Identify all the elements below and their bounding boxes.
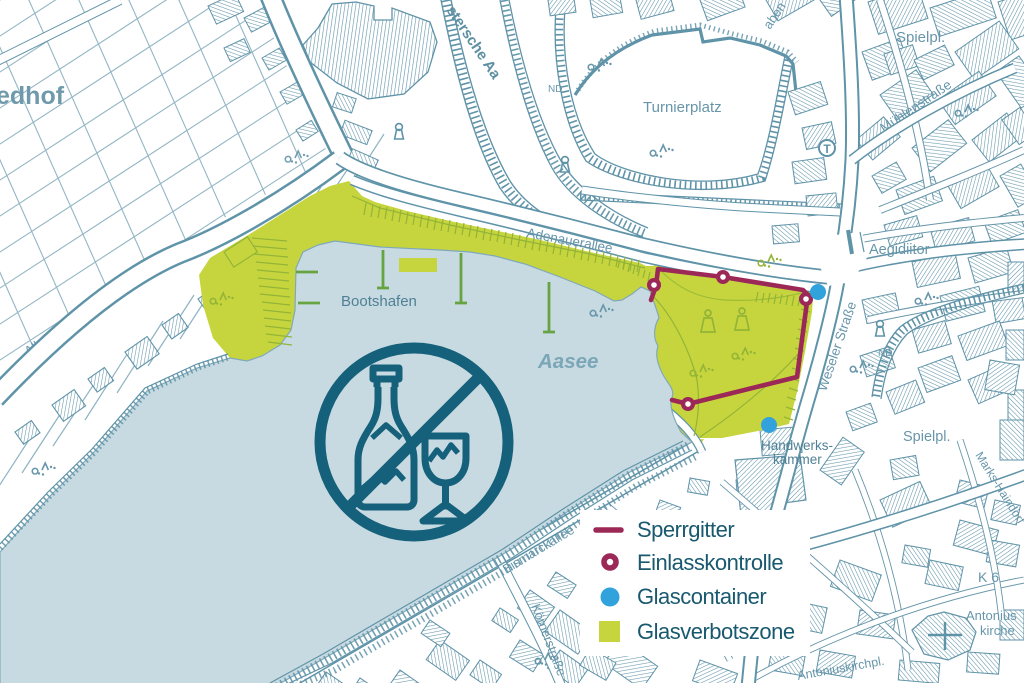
svg-text:K 6: K 6: [978, 569, 999, 585]
svg-text:Antonius: Antonius: [966, 608, 1017, 623]
svg-text:kammer: kammer: [773, 452, 822, 467]
svg-text:Glasverbotszone: Glasverbotszone: [637, 619, 795, 644]
svg-text:Einlasskontrolle: Einlasskontrolle: [637, 550, 783, 575]
svg-text:Bootshafen: Bootshafen: [341, 293, 417, 310]
svg-text:ND: ND: [548, 84, 562, 95]
svg-text:Handwerks-: Handwerks-: [761, 438, 833, 453]
svg-text:kirche: kirche: [980, 623, 1015, 638]
svg-text:Sperrgitter: Sperrgitter: [637, 517, 734, 542]
svg-text:Aegidiitor: Aegidiitor: [869, 242, 930, 258]
svg-text:Spielpl.: Spielpl.: [903, 429, 951, 445]
svg-text:Glascontainer: Glascontainer: [637, 584, 766, 609]
svg-text:Aasee: Aasee: [537, 350, 598, 373]
svg-text:T: T: [823, 142, 831, 156]
svg-text:Spielpl.: Spielpl.: [896, 29, 945, 46]
svg-text:edhof: edhof: [0, 82, 65, 110]
svg-text:ND: ND: [878, 348, 892, 359]
svg-text:Turnierplatz: Turnierplatz: [643, 99, 722, 116]
